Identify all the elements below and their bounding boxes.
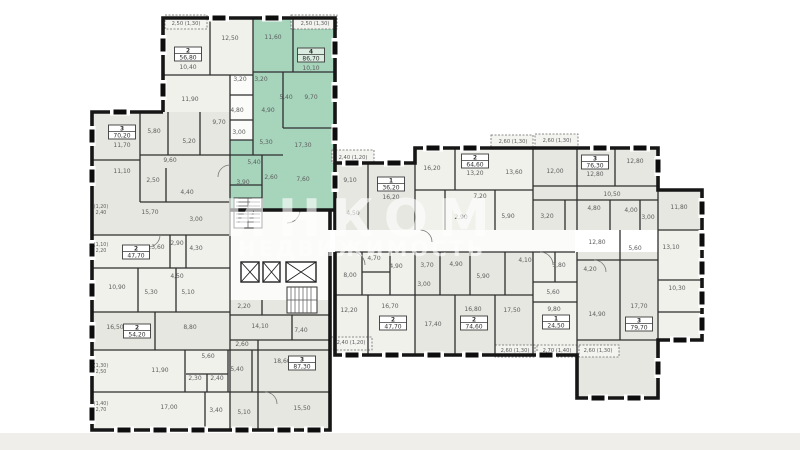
apartment-rooms-count: 4 <box>309 49 313 55</box>
room-area-label: 11,60 <box>264 34 281 41</box>
window-mark <box>388 161 401 166</box>
apartment-rooms-count: 2 <box>186 48 190 54</box>
room-area-label: 4,10 <box>518 257 532 264</box>
window-mark <box>428 353 441 358</box>
window-mark <box>346 161 359 166</box>
balcony-area-label: 2,40 <box>96 210 107 216</box>
window-mark <box>700 262 705 275</box>
window-mark <box>90 408 95 421</box>
window-mark <box>700 318 705 331</box>
balcony-area-label: 2,50 (1,30) <box>301 21 330 27</box>
room-area-label: 16,50 <box>106 324 123 331</box>
room-area-label: 10,10 <box>302 65 319 72</box>
room-area-label: 13,10 <box>662 244 679 251</box>
apartment-label[interactable]: 370,20 <box>109 125 136 139</box>
room-area-label: 4,90 <box>261 107 275 114</box>
room-area-label: 2,20 <box>237 303 251 310</box>
window-mark <box>634 146 647 151</box>
room-area-label: 11,70 <box>113 142 130 149</box>
room-area-label: 2,30 <box>188 375 202 382</box>
room-area-label: 5,90 <box>501 213 515 220</box>
apartment-total-area: 64,60 <box>466 161 483 168</box>
room-area-label: 13,60 <box>147 244 164 251</box>
room-area-label: 3,00 <box>189 216 203 223</box>
window-mark <box>386 353 399 358</box>
room-area-label: 3,20 <box>540 213 554 220</box>
room-area-label: 4,80 <box>230 107 244 114</box>
room-area-label: 2,60 <box>235 341 249 348</box>
room-area-label: 5,10 <box>237 409 251 416</box>
apartment-rooms-count: 3 <box>120 126 124 132</box>
room-area-label: 16,70 <box>381 303 398 310</box>
room-area-label: 12,00 <box>546 168 563 175</box>
window-mark <box>656 362 661 375</box>
room-area-label: 17,30 <box>294 142 311 149</box>
room-area-label: 5,40 <box>247 159 261 166</box>
room-area-label: 3,20 <box>233 76 247 83</box>
window-mark <box>700 292 705 305</box>
room-area-label: 5,40 <box>230 366 244 373</box>
room-area-label: 2,40 <box>210 375 224 382</box>
window-mark <box>466 353 479 358</box>
apartment-rooms-count: 1 <box>389 178 393 184</box>
apartment-label[interactable]: 387,30 <box>289 356 316 370</box>
window-mark <box>464 146 477 151</box>
apartment-rooms-count: 2 <box>391 317 395 323</box>
watermark: ИНКОМ НЕДВИЖИМОСТЬ <box>224 189 500 261</box>
apartment-rooms-count: 1 <box>554 316 558 322</box>
staircase-icon <box>287 287 317 313</box>
balcony-area-label: (1,40) <box>94 401 109 407</box>
room-area-label: 4,50 <box>170 273 184 280</box>
page-bottom-strip <box>0 433 800 450</box>
window-mark <box>236 428 249 433</box>
window-mark <box>213 16 226 21</box>
window-mark <box>592 396 605 401</box>
room-area-label: 12,50 <box>221 35 238 42</box>
apartment-total-area: 24,50 <box>547 322 564 329</box>
room-area-label: 10,90 <box>108 284 125 291</box>
room-area-label: 14,90 <box>588 311 605 318</box>
apartment-total-area: 74,60 <box>465 323 482 330</box>
apartment-total-area: 70,20 <box>113 132 130 139</box>
window-mark <box>154 428 167 433</box>
room-area-label: 7,40 <box>294 327 308 334</box>
room-area-label: 12,20 <box>340 307 357 314</box>
window-mark <box>90 130 95 143</box>
room-area-label: 5,60 <box>628 245 642 252</box>
room-area-label: 3,90 <box>236 179 250 186</box>
window-mark <box>700 202 705 215</box>
room-area-label: 2,50 <box>146 177 160 184</box>
balcony-area-label: 2,50 <box>96 369 107 375</box>
highlighted-apartment[interactable] <box>253 18 335 210</box>
room-area-label: 4,30 <box>189 245 203 252</box>
room-area-label: 5,60 <box>546 289 560 296</box>
window-mark <box>114 110 127 115</box>
balcony-area-label: 2,40 (1,20) <box>339 155 368 161</box>
room-area-label: 11,90 <box>181 96 198 103</box>
room-area-label: 9,70 <box>304 94 318 101</box>
window-mark <box>700 234 705 247</box>
room-area-label: 9,10 <box>343 177 357 184</box>
room-area-label: 17,40 <box>424 321 441 328</box>
room-area-label: 5,90 <box>476 273 490 280</box>
room-area-label: 11,10 <box>113 168 130 175</box>
room-area-label: 5,10 <box>181 289 195 296</box>
room-area-label: 4,20 <box>583 266 597 273</box>
room-area-label: 4,90 <box>389 263 403 270</box>
window-mark <box>278 428 291 433</box>
balcony-area-label: 2,60 (1,30) <box>543 138 572 144</box>
room-area-label: 17,50 <box>503 307 520 314</box>
room-area-label: 3,00 <box>641 214 655 221</box>
apartment-label[interactable]: 256,80 <box>175 47 202 61</box>
window-mark <box>594 146 607 151</box>
balcony-area-label: 2,70 <box>96 407 107 413</box>
balcony-area-label: 2,20 <box>96 248 107 254</box>
window-mark <box>90 326 95 339</box>
balcony-area-label: 2,60 (1,30) <box>499 139 528 145</box>
balcony-area-label: (1,10) <box>94 242 109 248</box>
window-mark <box>118 428 131 433</box>
room-area-label: 3,00 <box>232 129 246 136</box>
apartment-label[interactable]: 379,70 <box>626 317 653 331</box>
apartment-rooms-count: 3 <box>637 318 641 324</box>
window-mark <box>161 39 166 52</box>
room-area-label: 3,70 <box>420 262 434 269</box>
window-mark <box>90 170 95 183</box>
apartment-rooms-count: 3 <box>300 357 304 363</box>
window-mark <box>333 42 338 55</box>
room-area-label: 9,70 <box>212 119 226 126</box>
room-area-label: 5,20 <box>182 138 196 145</box>
watermark-line2: НЕДВИЖИМОСТЬ <box>238 237 486 261</box>
room-area-label: 8,00 <box>343 272 357 279</box>
room-area-label: 5,40 <box>279 94 293 101</box>
balcony-area-label: 2,40 (1,20) <box>337 340 366 346</box>
room-area-label: 7,60 <box>296 176 310 183</box>
balcony-area-label: 2,60 (1,30) <box>584 348 613 354</box>
apartment-label[interactable]: 254,20 <box>124 324 151 338</box>
window-mark <box>346 353 359 358</box>
window-mark <box>333 176 338 189</box>
apartment-rooms-count: 2 <box>473 155 477 161</box>
room-area-label: 3,00 <box>417 281 431 288</box>
window-mark <box>656 160 661 173</box>
apartment-total-area: 76,30 <box>586 162 603 169</box>
balcony-area-label: (1,20) <box>94 204 109 210</box>
room-area-label: 2,60 <box>264 174 278 181</box>
room-area-label: 4,00 <box>624 207 638 214</box>
room-area-label: 5,30 <box>259 139 273 146</box>
apartment-label[interactable]: 264,60 <box>462 154 489 168</box>
apartment-label[interactable]: 486,70 <box>298 48 325 62</box>
balcony-area-label: (1,30) <box>94 363 109 369</box>
apartment-label[interactable]: 124,50 <box>543 315 570 329</box>
room-area-label: 17,70 <box>630 303 647 310</box>
balcony-area-label: 2,60 (1,30) <box>501 348 530 354</box>
window-mark <box>333 86 338 99</box>
room-area-label: 9,60 <box>163 157 177 164</box>
room-area-label: 5,60 <box>201 353 215 360</box>
room-area-label: 9,80 <box>547 306 561 313</box>
room-area-label: 2,90 <box>170 240 184 247</box>
room-area-label: 11,90 <box>151 367 168 374</box>
apartment-label[interactable]: 247,70 <box>123 245 150 259</box>
apartment-total-area: 54,20 <box>128 331 145 338</box>
room-area-label: 12,80 <box>588 239 605 246</box>
apartment-rooms-count: 3 <box>593 156 597 162</box>
room-area-label: 16,80 <box>464 306 481 313</box>
window-mark <box>266 16 279 21</box>
room-area-label: 10,40 <box>179 64 196 71</box>
room-area-label: 13,20 <box>466 170 483 177</box>
apartment-label[interactable]: 274,60 <box>461 316 488 330</box>
room-area-label: 14,10 <box>251 323 268 330</box>
room-area-label: 12,80 <box>626 158 643 165</box>
room-area-label: 5,80 <box>147 128 161 135</box>
apartment-label[interactable]: 247,70 <box>380 316 407 330</box>
apartment-total-area: 87,30 <box>293 363 310 370</box>
floor-plan-page: 12,5010,4011,6010,103,203,2011,905,409,7… <box>0 0 800 450</box>
room-area-label: 10,50 <box>603 191 620 198</box>
apartment-total-area: 47,70 <box>384 323 401 330</box>
window-mark <box>308 428 321 433</box>
apartment-total-area: 56,80 <box>179 54 196 61</box>
apartment-total-area: 86,70 <box>302 55 319 62</box>
balcony-area-label: 2,50 (1,30) <box>172 21 201 27</box>
room-area-label: 16,20 <box>423 165 440 172</box>
elevator-shafts <box>241 262 316 282</box>
window-mark <box>90 284 95 297</box>
room-area-label: 10,30 <box>668 285 685 292</box>
room-area-label: 4,90 <box>449 261 463 268</box>
room-area-label: 3,20 <box>254 76 268 83</box>
window-mark <box>674 338 687 343</box>
room-area-label: 13,60 <box>505 169 522 176</box>
apartment-total-area: 47,70 <box>127 252 144 259</box>
room-area-label: 11,80 <box>670 204 687 211</box>
apartment-rooms-count: 2 <box>135 325 139 331</box>
apartment-label[interactable]: 376,30 <box>582 155 609 169</box>
room-area-label: 3,40 <box>209 407 223 414</box>
balcony-area-label: 2,70 (1,40) <box>543 348 572 354</box>
room-area-label: 8,80 <box>183 324 197 331</box>
floor-plan: 12,5010,4011,6010,103,203,2011,905,409,7… <box>0 0 800 450</box>
apartment-region <box>92 312 230 350</box>
room-area-label: 4,40 <box>180 189 194 196</box>
apartment-rooms-count: 2 <box>472 317 476 323</box>
window-mark <box>427 146 440 151</box>
room-area-label: 3,80 <box>552 262 566 269</box>
window-mark <box>333 128 338 141</box>
room-area-label: 12,80 <box>586 171 603 178</box>
window-mark <box>161 84 166 97</box>
window-mark <box>628 396 641 401</box>
room-area-label: 15,70 <box>141 209 158 216</box>
window-mark <box>192 428 205 433</box>
room-area-label: 5,30 <box>144 289 158 296</box>
apartment-total-area: 79,70 <box>630 324 647 331</box>
room-area-label: 15,50 <box>293 405 310 412</box>
apartment-rooms-count: 2 <box>134 246 138 252</box>
room-area-label: 4,80 <box>587 205 601 212</box>
room-area-label: 17,00 <box>160 404 177 411</box>
